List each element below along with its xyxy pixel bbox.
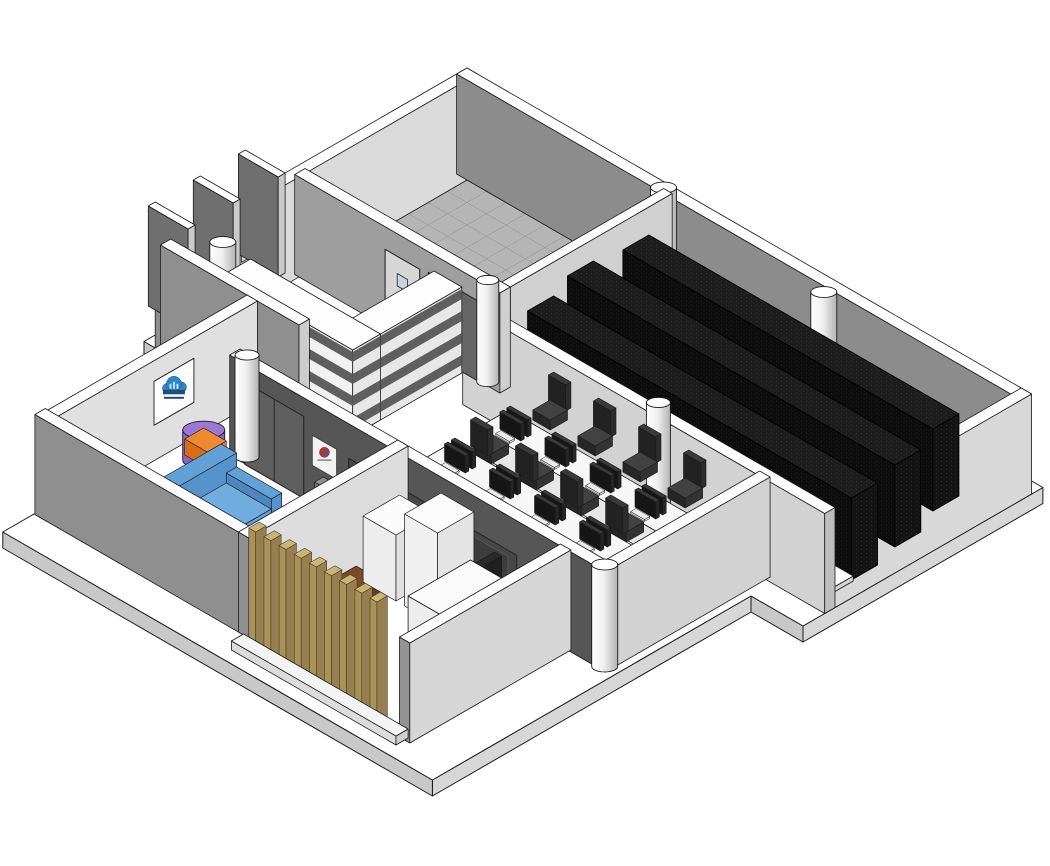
column-7 xyxy=(592,559,618,672)
floorplan-canvas xyxy=(0,0,1050,866)
revit-3d-floor-plan-view xyxy=(0,0,1050,866)
column-4 xyxy=(477,275,499,386)
column-6 xyxy=(235,350,259,462)
